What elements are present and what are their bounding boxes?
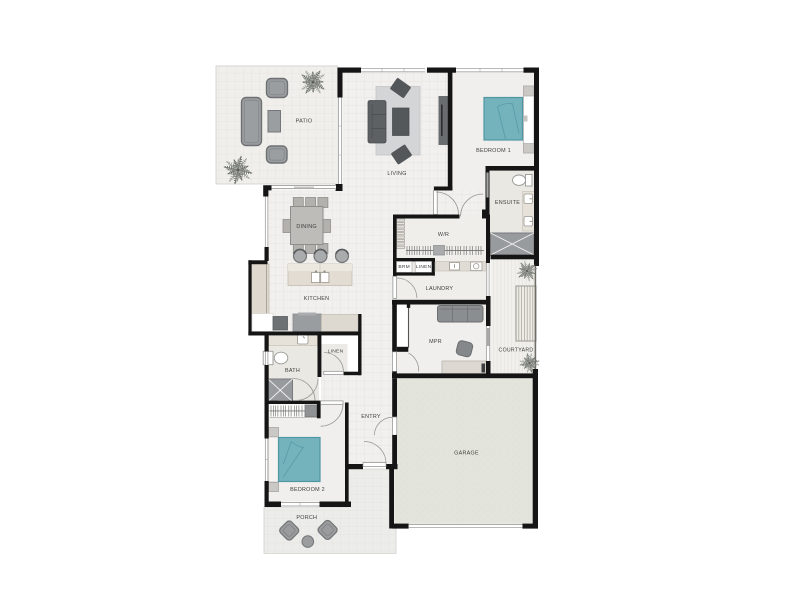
svg-text:KITCHEN: KITCHEN [304, 296, 330, 302]
svg-text:PATIO: PATIO [296, 119, 313, 125]
svg-text:GARAGE: GARAGE [454, 450, 479, 456]
svg-text:BRM: BRM [398, 264, 410, 270]
svg-text:BEDROOM 2: BEDROOM 2 [290, 487, 325, 493]
svg-text:LINEN: LINEN [328, 348, 344, 354]
svg-text:LAUNDRY: LAUNDRY [426, 286, 454, 292]
svg-text:ENTRY: ENTRY [361, 414, 381, 420]
svg-text:W/R: W/R [438, 232, 449, 238]
svg-text:ENSUITE: ENSUITE [495, 200, 520, 206]
svg-text:BEDROOM 1: BEDROOM 1 [476, 148, 511, 154]
svg-text:LINEN: LINEN [416, 264, 432, 270]
svg-text:PORCH: PORCH [296, 515, 317, 521]
svg-text:LIVING: LIVING [387, 171, 406, 177]
svg-text:MPR: MPR [429, 339, 442, 345]
svg-text:BATH: BATH [285, 368, 300, 374]
svg-text:DINING: DINING [296, 224, 317, 230]
svg-text:COURTYARD: COURTYARD [499, 347, 534, 353]
